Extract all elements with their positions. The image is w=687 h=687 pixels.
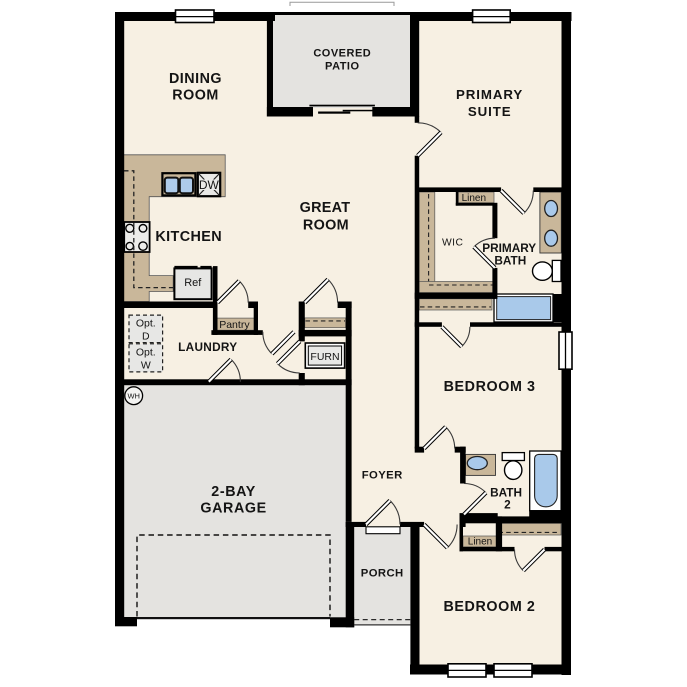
svg-text:D: D [142,331,150,343]
svg-text:COVERED: COVERED [313,47,371,59]
svg-text:Opt.: Opt. [136,318,156,330]
svg-text:Opt.: Opt. [136,346,156,358]
svg-text:PATIO: PATIO [325,61,359,73]
svg-text:Pantry: Pantry [219,319,250,331]
svg-text:BEDROOM 3: BEDROOM 3 [444,379,536,395]
svg-text:PORCH: PORCH [361,567,404,579]
svg-text:Linen: Linen [468,537,492,548]
svg-text:Linen: Linen [462,193,486,204]
svg-text:FOYER: FOYER [362,470,403,482]
svg-text:DINING: DINING [169,71,222,87]
svg-text:2: 2 [504,498,511,512]
svg-text:Ref: Ref [184,277,202,289]
svg-text:FURN: FURN [310,351,339,363]
svg-text:BATH: BATH [494,253,526,267]
svg-text:PRIMARY: PRIMARY [456,87,523,102]
svg-text:DW: DW [199,178,220,192]
svg-text:GREAT: GREAT [300,200,351,216]
svg-text:W: W [141,359,151,371]
svg-text:ROOM: ROOM [172,88,218,104]
svg-text:ROOM: ROOM [303,217,349,233]
svg-text:KITCHEN: KITCHEN [155,229,222,245]
svg-text:SUITE: SUITE [468,104,512,119]
svg-text:WIC: WIC [442,238,464,249]
svg-text:LAUNDRY: LAUNDRY [178,340,237,354]
svg-text:BEDROOM 2: BEDROOM 2 [444,599,536,615]
svg-text:GARAGE: GARAGE [200,501,266,517]
svg-text:WH: WH [127,392,140,401]
svg-text:2-BAY: 2-BAY [211,484,256,500]
